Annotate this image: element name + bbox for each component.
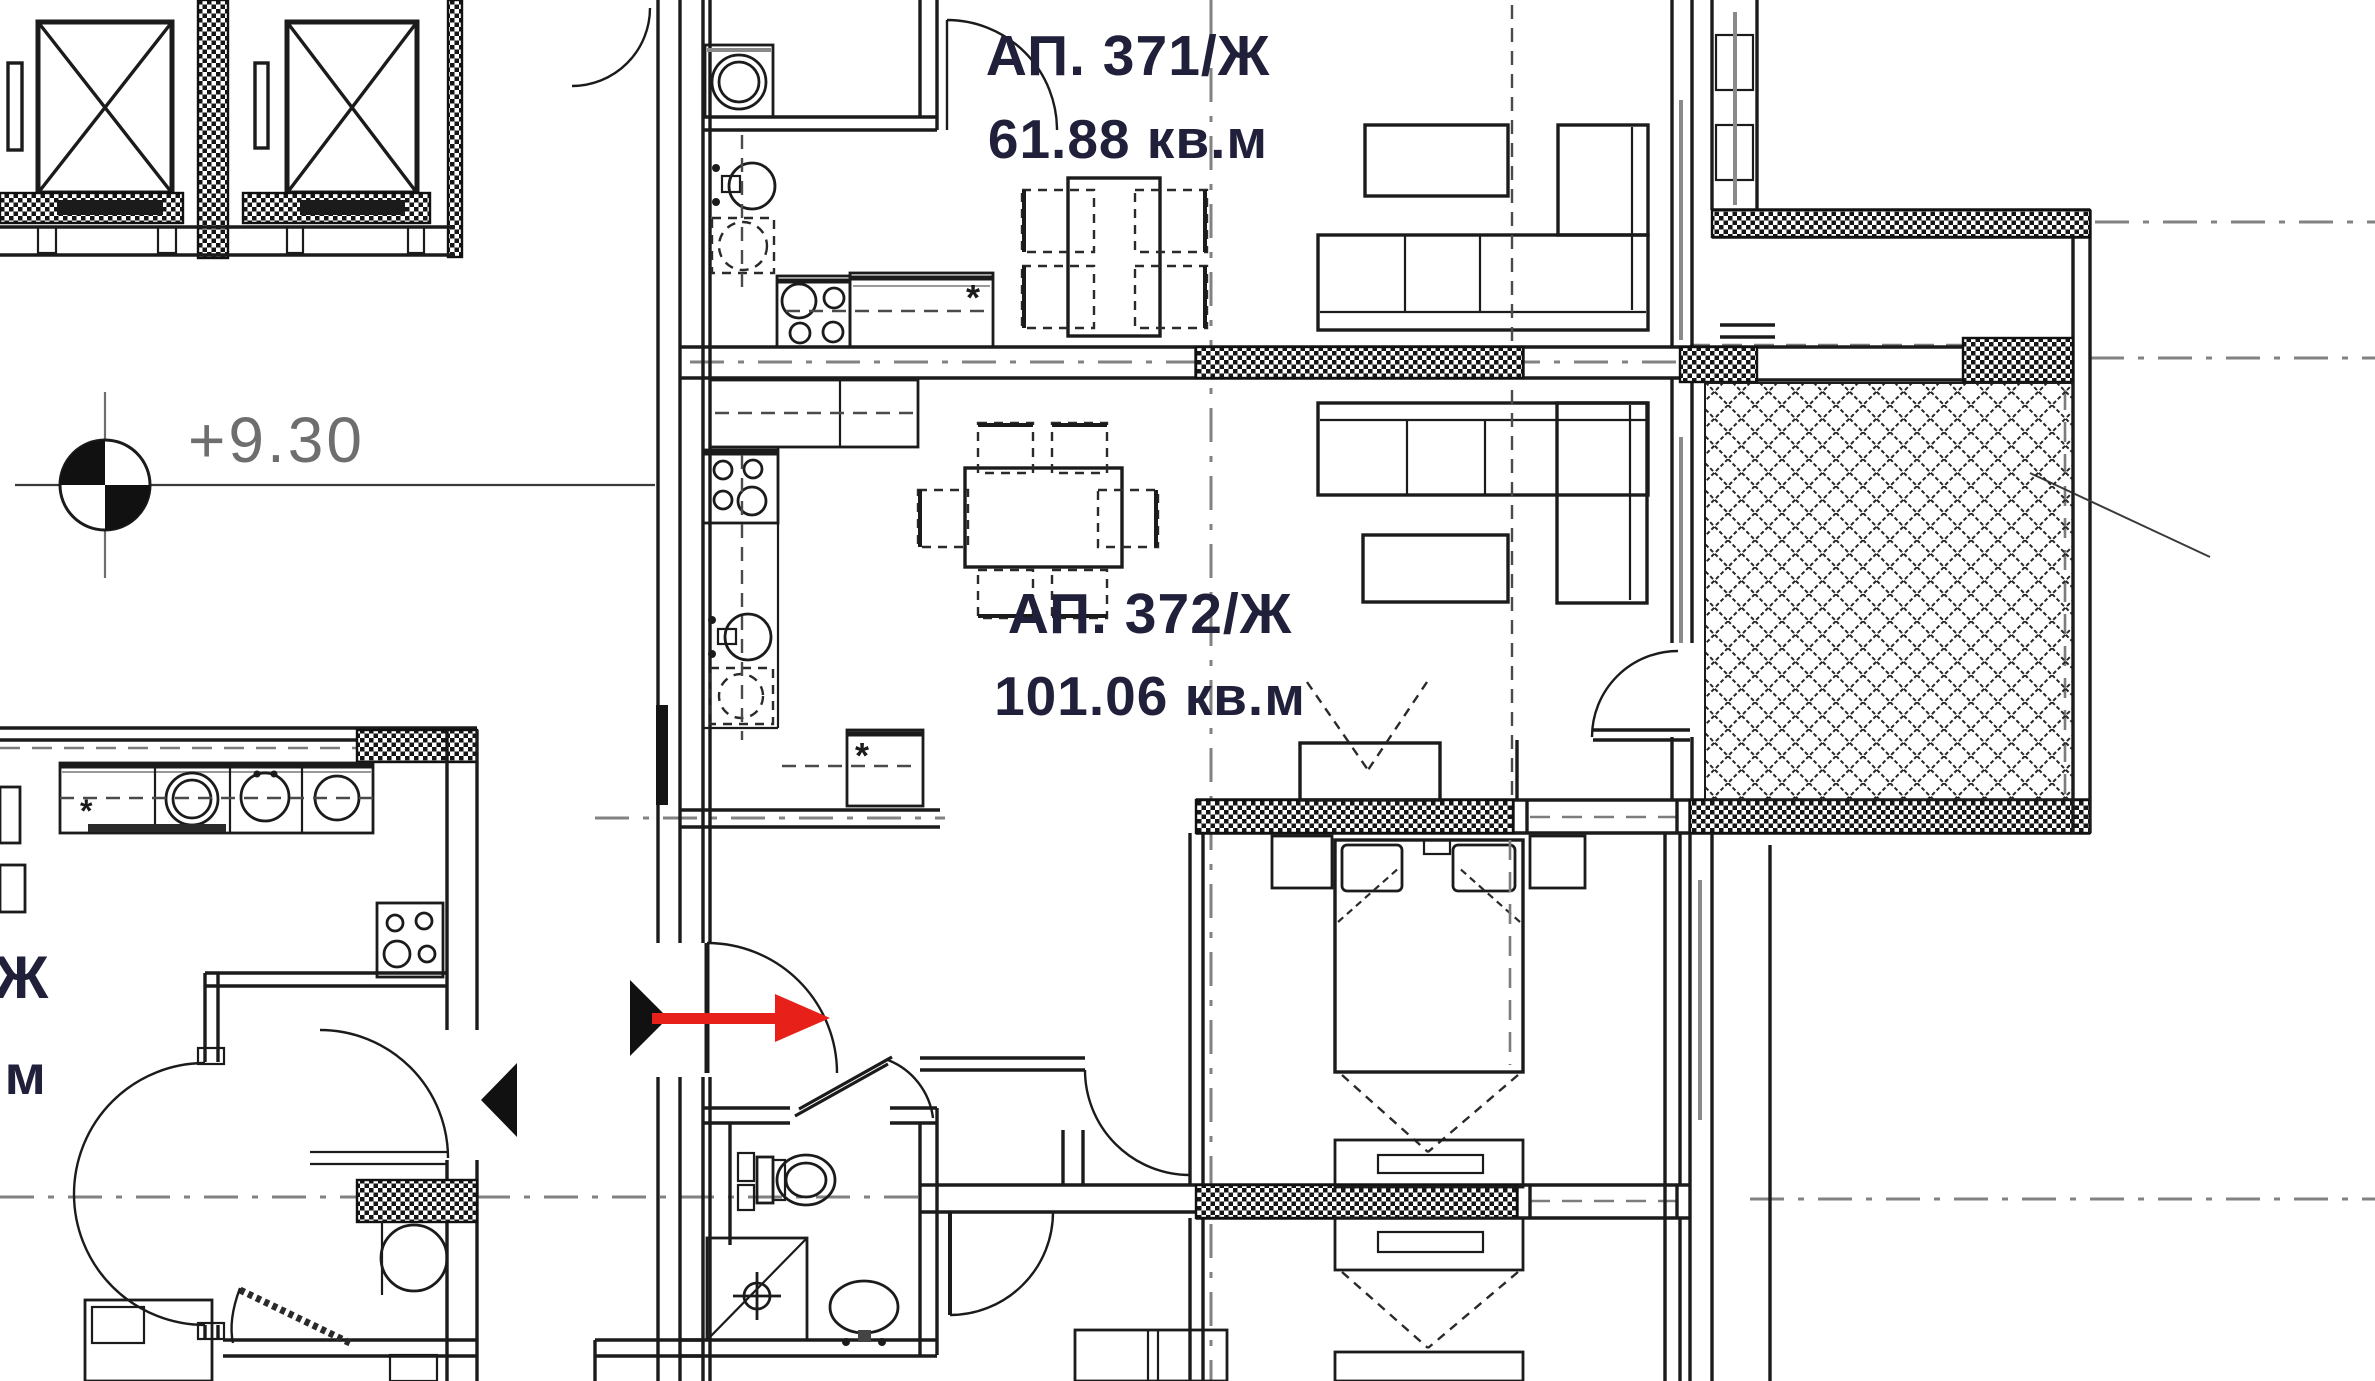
cabinet xyxy=(0,865,25,912)
entrance-markers xyxy=(481,980,830,1137)
appliance-star-marker: * xyxy=(855,735,869,776)
boiler-icon xyxy=(712,218,774,273)
dresser xyxy=(1335,1218,1523,1270)
wall-hatch xyxy=(1196,1185,1517,1218)
column-hatch xyxy=(1963,338,2073,382)
shower-icon xyxy=(707,1238,807,1340)
washbasin-icon xyxy=(830,1281,898,1346)
kitchen-sink-icon xyxy=(712,163,775,209)
elevator-block xyxy=(0,0,650,258)
apartment-372-area: 101.06 кв.м xyxy=(994,665,1306,727)
nightstand xyxy=(1530,836,1585,888)
apartment-371-area: 61.88 кв.м xyxy=(988,108,1268,170)
cabinet xyxy=(1300,682,1440,800)
door-arc-entrance-372 xyxy=(707,943,837,1073)
boiler-icon xyxy=(381,1222,447,1295)
elevator-door-2 xyxy=(300,200,405,215)
wall-hatch xyxy=(357,1180,477,1222)
dining-table-371 xyxy=(1022,178,1207,336)
elevator-shaft-1-icon xyxy=(8,22,172,193)
pillow xyxy=(1342,845,1402,891)
apartment-372-label: АП. 372/Ж xyxy=(1008,582,1293,646)
floor-plan: +9.30 xyxy=(0,0,2375,1381)
bedroom-2 xyxy=(1075,1218,1523,1381)
door-leaf-bath-372 xyxy=(795,1057,892,1116)
bed xyxy=(1335,1352,1523,1381)
elevator-shaft-2-icon xyxy=(255,22,417,193)
apartment-371-label: АП. 371/Ж xyxy=(986,24,1271,88)
duct-door xyxy=(656,705,668,805)
sofa-371 xyxy=(1318,125,1648,330)
duct xyxy=(390,1355,437,1381)
elevator-door-1 xyxy=(57,200,163,215)
door-arc-small xyxy=(232,1288,240,1343)
wall-hatch xyxy=(357,730,477,762)
cabinet xyxy=(0,787,20,843)
entrance-arrow-icon xyxy=(652,994,830,1042)
kitchen-counter: * xyxy=(60,763,373,833)
door-arc-left-entrance xyxy=(320,1030,448,1158)
kitchen-sink-icon xyxy=(708,614,771,660)
double-bed xyxy=(1335,840,1523,1072)
parapet-hatch xyxy=(1712,210,2090,237)
dresser xyxy=(1335,1140,1523,1187)
wall-hatch xyxy=(1196,800,1513,833)
door-arc-left-apartment xyxy=(74,1063,205,1325)
door-arc-living-372 xyxy=(1592,651,1678,737)
pillow xyxy=(92,1307,144,1343)
duct xyxy=(738,1153,754,1181)
pillow xyxy=(1453,845,1515,891)
level-label: +9.30 xyxy=(188,404,365,476)
tv-stand xyxy=(1365,125,1508,196)
door-leaf-left-entrance xyxy=(310,1152,447,1164)
left-apartment-fixtures: * xyxy=(0,763,447,1381)
wall-hatch xyxy=(1690,800,2090,833)
wall-column-hatch xyxy=(198,0,228,258)
bedroom-372 xyxy=(1272,836,1585,1187)
floor-plan-canvas: +9.30 xyxy=(0,0,2375,1381)
kitchen-counter xyxy=(710,380,918,447)
stove-icon xyxy=(377,903,443,977)
level-marker: +9.30 xyxy=(15,392,655,578)
door-arc-room-372 xyxy=(950,1212,1053,1315)
door-leaf-small xyxy=(240,1290,350,1343)
bathroom-372 xyxy=(707,1153,898,1346)
door-arc-hall-372 xyxy=(1085,1070,1190,1175)
stove-icon xyxy=(703,450,778,523)
washing-machine-icon xyxy=(705,45,773,117)
fridge: * xyxy=(782,730,923,806)
wall-column-hatch xyxy=(448,0,462,257)
balcony-floor-hatch xyxy=(1705,383,2073,800)
nightstand xyxy=(1272,836,1332,888)
left-apartment-label-fragment: Ж xyxy=(0,944,49,1011)
coffee-table xyxy=(1363,535,1508,602)
column-hatch xyxy=(1680,347,1757,382)
party-wall-hatch xyxy=(1196,347,1523,378)
left-apartment-area-fragment: .м xyxy=(0,1043,47,1106)
sofa-372 xyxy=(1318,403,1648,603)
entrance-triangle-icon xyxy=(481,1063,517,1137)
lobby-door-arc xyxy=(572,8,650,86)
